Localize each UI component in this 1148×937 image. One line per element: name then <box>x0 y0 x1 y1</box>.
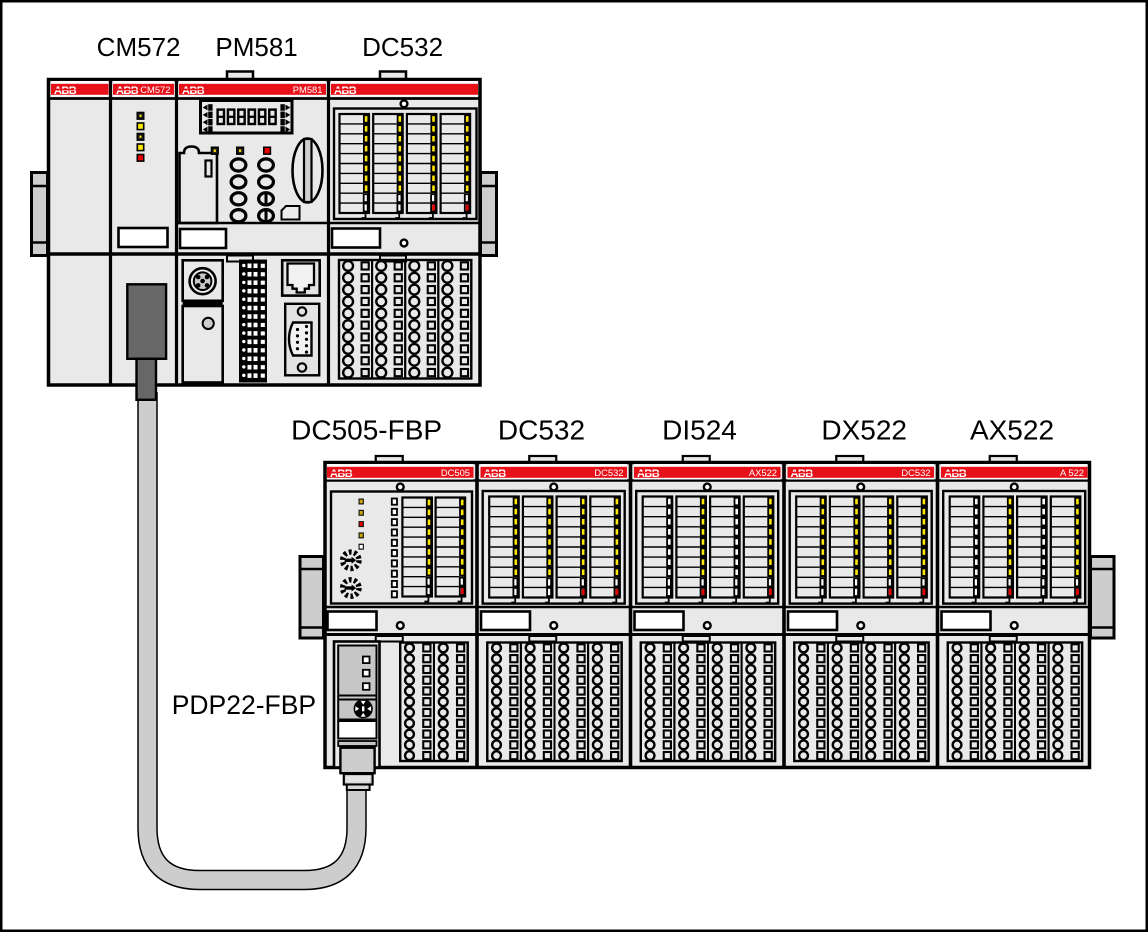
svg-text:ABB: ABB <box>182 85 205 97</box>
svg-text:PDP22-FBP: PDP22-FBP <box>172 690 316 720</box>
svg-text:DC532: DC532 <box>362 32 443 62</box>
svg-text:DC532: DC532 <box>594 467 623 478</box>
svg-text:PM581: PM581 <box>293 84 323 95</box>
svg-text:ABB: ABB <box>637 468 660 480</box>
svg-text:DC532: DC532 <box>901 467 930 478</box>
svg-text:ABB: ABB <box>330 468 353 480</box>
svg-text:ABB: ABB <box>334 85 357 97</box>
svg-text:ABB: ABB <box>116 85 139 97</box>
svg-text:AX522: AX522 <box>970 415 1054 446</box>
svg-text:ABB: ABB <box>944 468 967 480</box>
svg-text:PM581: PM581 <box>215 32 297 62</box>
svg-text:CM572: CM572 <box>140 84 170 95</box>
svg-text:DX522: DX522 <box>821 415 907 446</box>
svg-text:ABB: ABB <box>484 468 507 480</box>
svg-text:ABB: ABB <box>791 468 814 480</box>
svg-text:AX522: AX522 <box>749 467 777 478</box>
svg-text:DC532: DC532 <box>498 415 585 446</box>
svg-text:ABB: ABB <box>54 85 77 97</box>
svg-text:DI524: DI524 <box>662 415 737 446</box>
svg-text:DC505: DC505 <box>441 467 470 478</box>
svg-text:CM572: CM572 <box>97 32 181 62</box>
svg-text:A 522: A 522 <box>1060 467 1084 478</box>
svg-text:DC505-FBP: DC505-FBP <box>291 415 442 446</box>
